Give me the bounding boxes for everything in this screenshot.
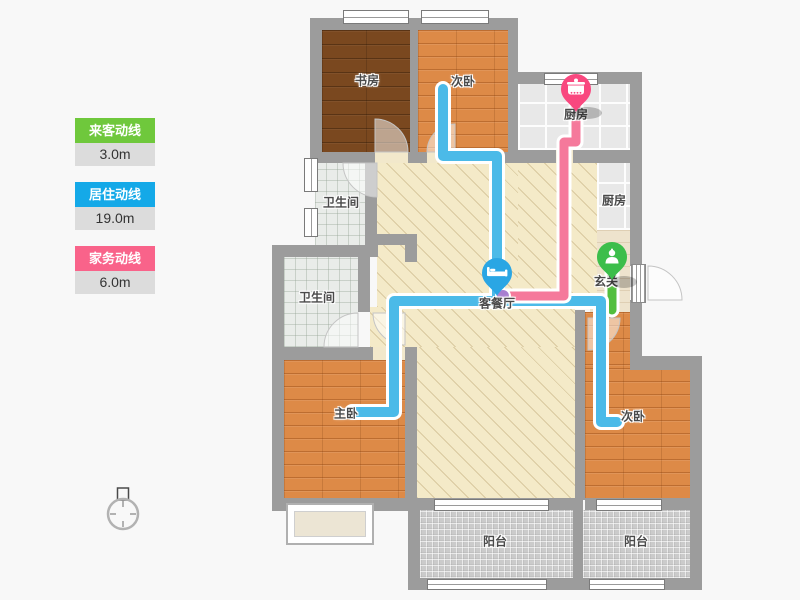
room-label-bedroom2-top: 次卧 <box>451 73 475 90</box>
room-label-balcony-middle: 阳台 <box>483 533 507 550</box>
room-label-study: 书房 <box>355 72 379 89</box>
wall <box>272 245 378 257</box>
bay-window <box>286 503 374 545</box>
bedroom2-bottom-hall-floor <box>585 312 630 368</box>
living-floor <box>417 347 575 498</box>
wall <box>272 245 284 510</box>
legend-item-visitor[interactable]: 来客动线 3.0m <box>75 118 155 166</box>
legend-value: 19.0m <box>75 207 155 230</box>
wall <box>358 257 370 312</box>
wall <box>517 150 556 163</box>
living-floor <box>370 307 575 347</box>
legend-value: 3.0m <box>75 143 155 166</box>
window <box>421 10 489 24</box>
room-label-bedroom2-bottom: 次卧 <box>621 408 645 425</box>
room-label-kitchen: 厨房 <box>564 106 588 123</box>
legend-item-living[interactable]: 居住动线 19.0m <box>75 182 155 230</box>
wall <box>455 152 517 163</box>
window <box>589 579 665 590</box>
study-floor <box>322 30 410 152</box>
legend-value: 6.0m <box>75 271 155 294</box>
door-opening <box>556 150 573 163</box>
bedroom2-top-floor <box>418 30 508 152</box>
wall <box>630 72 642 266</box>
room-label-bath-upper: 卫生间 <box>323 194 359 211</box>
legend: 来客动线 3.0m 居住动线 19.0m 家务动线 6.0m <box>75 118 155 310</box>
legend-item-housework[interactable]: 家务动线 6.0m <box>75 246 155 294</box>
window <box>596 499 662 511</box>
room-label-living-dining: 客餐厅 <box>479 295 515 312</box>
legend-label: 家务动线 <box>75 246 155 271</box>
bedroom2-bottom-floor <box>585 368 690 498</box>
entrance-door[interactable] <box>631 264 646 303</box>
wall <box>365 157 377 249</box>
sliding-door <box>434 499 549 511</box>
wall <box>508 18 518 155</box>
window <box>544 73 598 85</box>
wall <box>272 347 373 360</box>
wall <box>410 30 418 152</box>
room-label-entry: 玄关 <box>594 273 618 290</box>
wall <box>575 310 585 500</box>
legend-label: 居住动线 <box>75 182 155 207</box>
wall <box>408 152 427 163</box>
room-label-master-bedroom: 主卧 <box>334 405 358 422</box>
wall <box>408 498 420 590</box>
wall <box>405 347 417 500</box>
living-floor <box>518 157 597 307</box>
room-label-balcony-right: 阳台 <box>624 533 648 550</box>
window <box>343 10 409 24</box>
door-arc <box>648 266 682 300</box>
north-compass-icon <box>108 488 138 529</box>
window <box>304 208 318 237</box>
wall <box>405 234 417 262</box>
room-label-kitchen-side: 厨房 <box>602 192 626 209</box>
wall <box>690 356 702 590</box>
door-opening <box>427 152 455 163</box>
master-bedroom-floor <box>284 360 405 498</box>
wall <box>573 150 642 163</box>
floorplan-page: 来客动线 3.0m 居住动线 19.0m 家务动线 6.0m <box>0 0 800 600</box>
wall <box>573 498 583 590</box>
window <box>427 579 547 590</box>
window <box>304 158 318 192</box>
door-opening <box>375 152 408 163</box>
room-label-bath-lower: 卫生间 <box>299 289 335 306</box>
legend-label: 来客动线 <box>75 118 155 143</box>
wall <box>630 300 642 358</box>
wall <box>310 18 322 155</box>
door-opening <box>373 347 405 360</box>
